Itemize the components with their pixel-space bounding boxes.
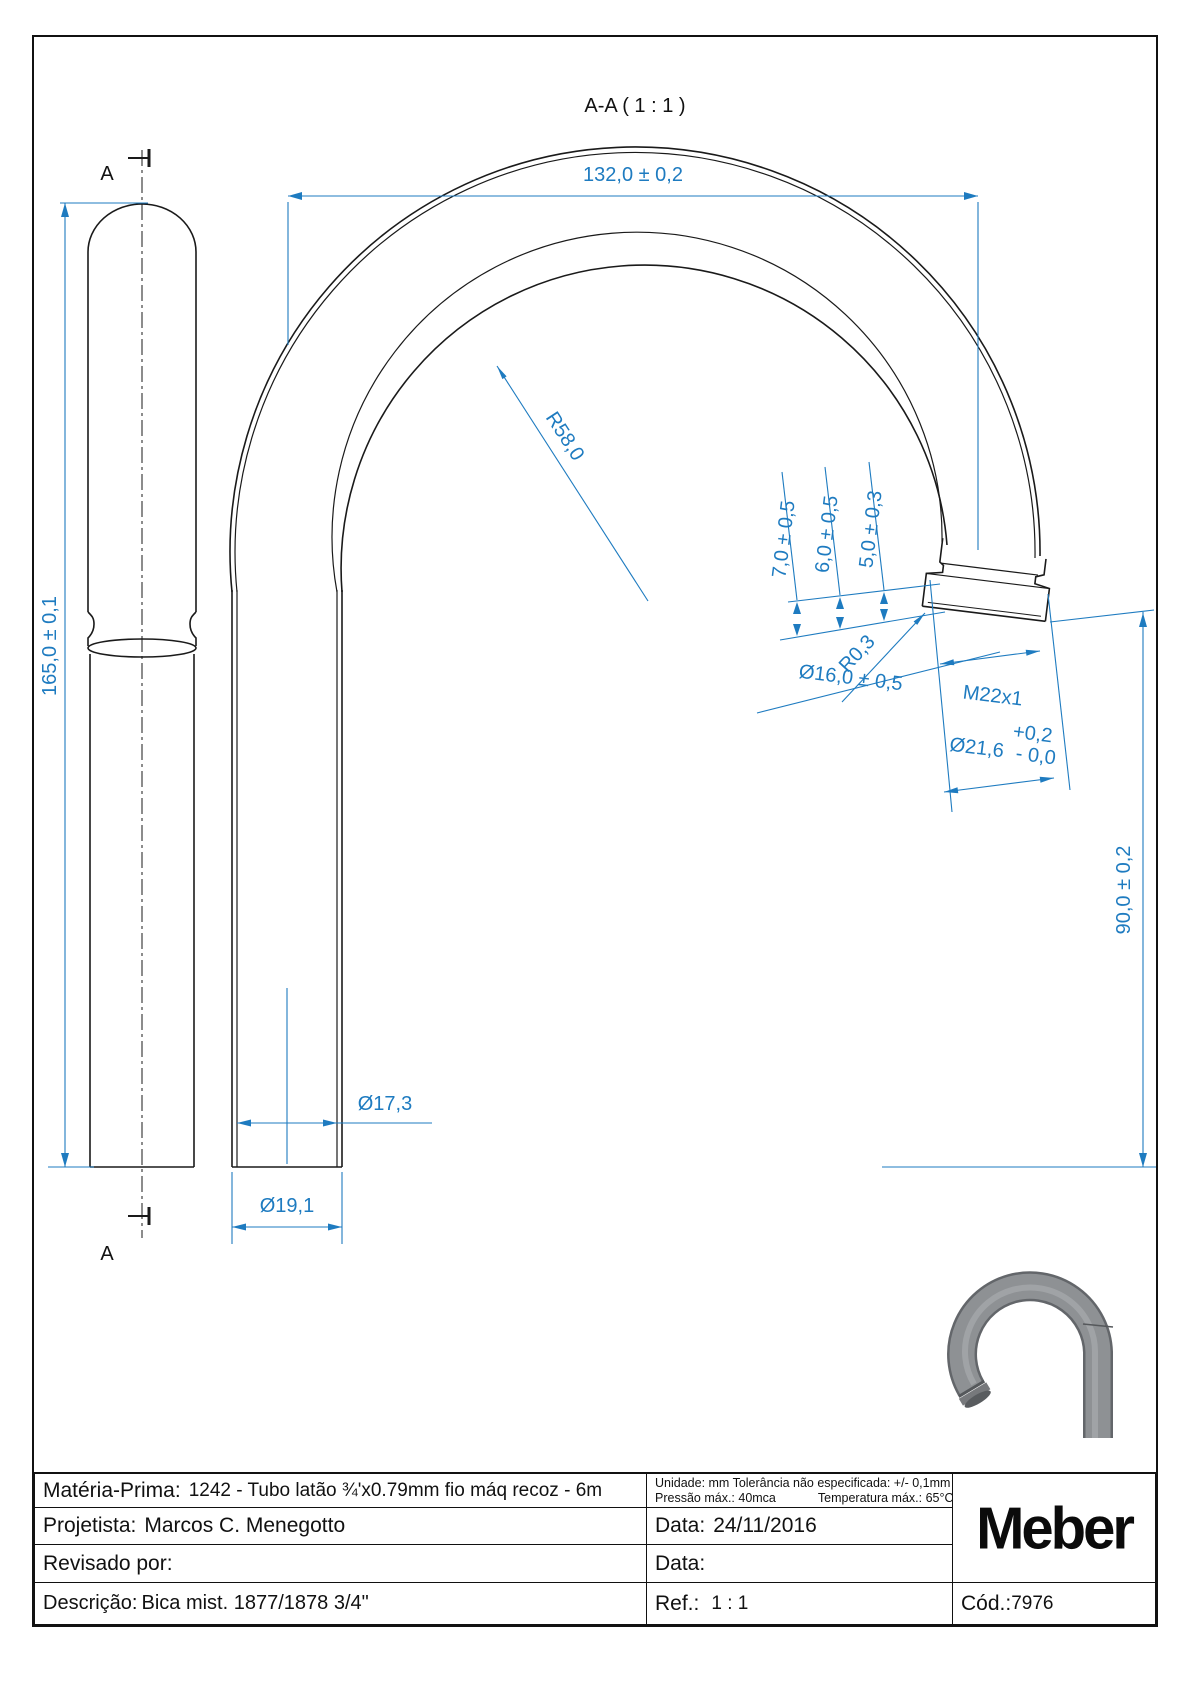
- data1-value: 24/11/2016: [713, 1514, 817, 1538]
- unit-tolerance-note: Unidade: mm Tolerância não especificada:…: [655, 1476, 950, 1491]
- descricao-cell: Descrição: Bica mist. 1877/1878 3/4": [35, 1583, 647, 1624]
- dim-step-6-text: 6,0 ± 0,5: [811, 494, 842, 574]
- dim-outer-diameter-text: Ø19,1: [260, 1195, 314, 1217]
- projetista-value: Marcos C. Menegotto: [144, 1514, 345, 1538]
- section-cut-marks: [128, 149, 149, 1225]
- revisado-cell: Revisado por:: [35, 1545, 647, 1583]
- cod-value: 7976: [1011, 1593, 1053, 1615]
- render-3d-spout: [958, 1286, 1113, 1438]
- dim-r58-arrow: [497, 366, 507, 379]
- section-label-bottom: A: [100, 1243, 114, 1265]
- dim-o17-lines: [237, 988, 432, 1164]
- data1-cell: Data: 24/11/2016: [647, 1508, 953, 1545]
- materia-prima-value: 1242 - Tubo latão ¾'x0.79mm fio máq reco…: [189, 1480, 602, 1502]
- drawing-sheet: A-A ( 1 : 1 ) A A 165,0 ± 0,1: [0, 0, 1190, 1684]
- data2-label: Data:: [655, 1552, 705, 1576]
- revisado-label: Revisado por:: [43, 1552, 173, 1576]
- title-block: Matéria-Prima: 1242 - Tubo latão ¾'x0.79…: [33, 1472, 1157, 1626]
- materia-prima-label: Matéria-Prima:: [43, 1479, 181, 1503]
- ref-label: Ref.:: [655, 1592, 699, 1616]
- dim-r58-leader: [497, 366, 648, 601]
- dim-collar-tol-minus-text: - 0,0: [1015, 743, 1057, 770]
- logo-cell: Meber: [953, 1474, 1155, 1583]
- cod-label: Cód.:: [961, 1592, 1011, 1616]
- dim-165-lines: [48, 203, 148, 1167]
- section-view-outline: [230, 147, 1040, 1167]
- projetista-label: Projetista:: [43, 1514, 136, 1538]
- dim-collar-diameter-text: Ø21,6: [948, 734, 1005, 762]
- data1-label: Data:: [655, 1514, 705, 1538]
- materia-prima-cell: Matéria-Prima: 1242 - Tubo latão ¾'x0.79…: [35, 1474, 647, 1508]
- dim-outlet-height-text: 90,0 ± 0,2: [1113, 846, 1135, 935]
- ref-value: 1 : 1: [711, 1593, 748, 1615]
- dim-r03-arrow: [914, 613, 925, 625]
- projetista-cell: Projetista: Marcos C. Menegotto: [35, 1508, 647, 1545]
- spout-end-collar: [922, 537, 1054, 622]
- section-label-top: A: [100, 163, 114, 185]
- descricao-value: Bica mist. 1877/1878 3/4": [141, 1592, 368, 1615]
- descricao-label: Descrição:: [43, 1592, 137, 1615]
- pressure-note: Pressão máx.: 40mca: [655, 1491, 776, 1506]
- dim-m22-arrows: [940, 650, 1054, 793]
- temperature-note: Temperatura máx.: 65°C: [818, 1491, 953, 1506]
- cod-cell: Cód.: 7976: [953, 1583, 1155, 1624]
- dim-thread-text: M22x1: [962, 681, 1024, 710]
- dim-height-text: 165,0 ± 0,1: [39, 596, 61, 696]
- dim-step-5-text: 5,0 ± 0,3: [855, 489, 886, 569]
- section-view-title: A-A ( 1 : 1 ): [584, 95, 685, 117]
- dim-inner-diameter-text: Ø17,3: [358, 1093, 412, 1115]
- tolerance-notes-cell: Unidade: mm Tolerância não especificada:…: [647, 1474, 953, 1508]
- dim-width-text: 132,0 ± 0,2: [583, 164, 683, 186]
- technical-drawing-canvas: A-A ( 1 : 1 ) A A 165,0 ± 0,1: [0, 0, 1190, 1684]
- data2-cell: Data:: [647, 1545, 953, 1583]
- dim-bend-radius-text: R58,0: [541, 408, 589, 465]
- dim-step-7-text: 7,0 ± 0,5: [768, 499, 799, 579]
- company-logo: Meber: [976, 1494, 1132, 1562]
- ref-cell: Ref.: 1 : 1: [647, 1583, 953, 1624]
